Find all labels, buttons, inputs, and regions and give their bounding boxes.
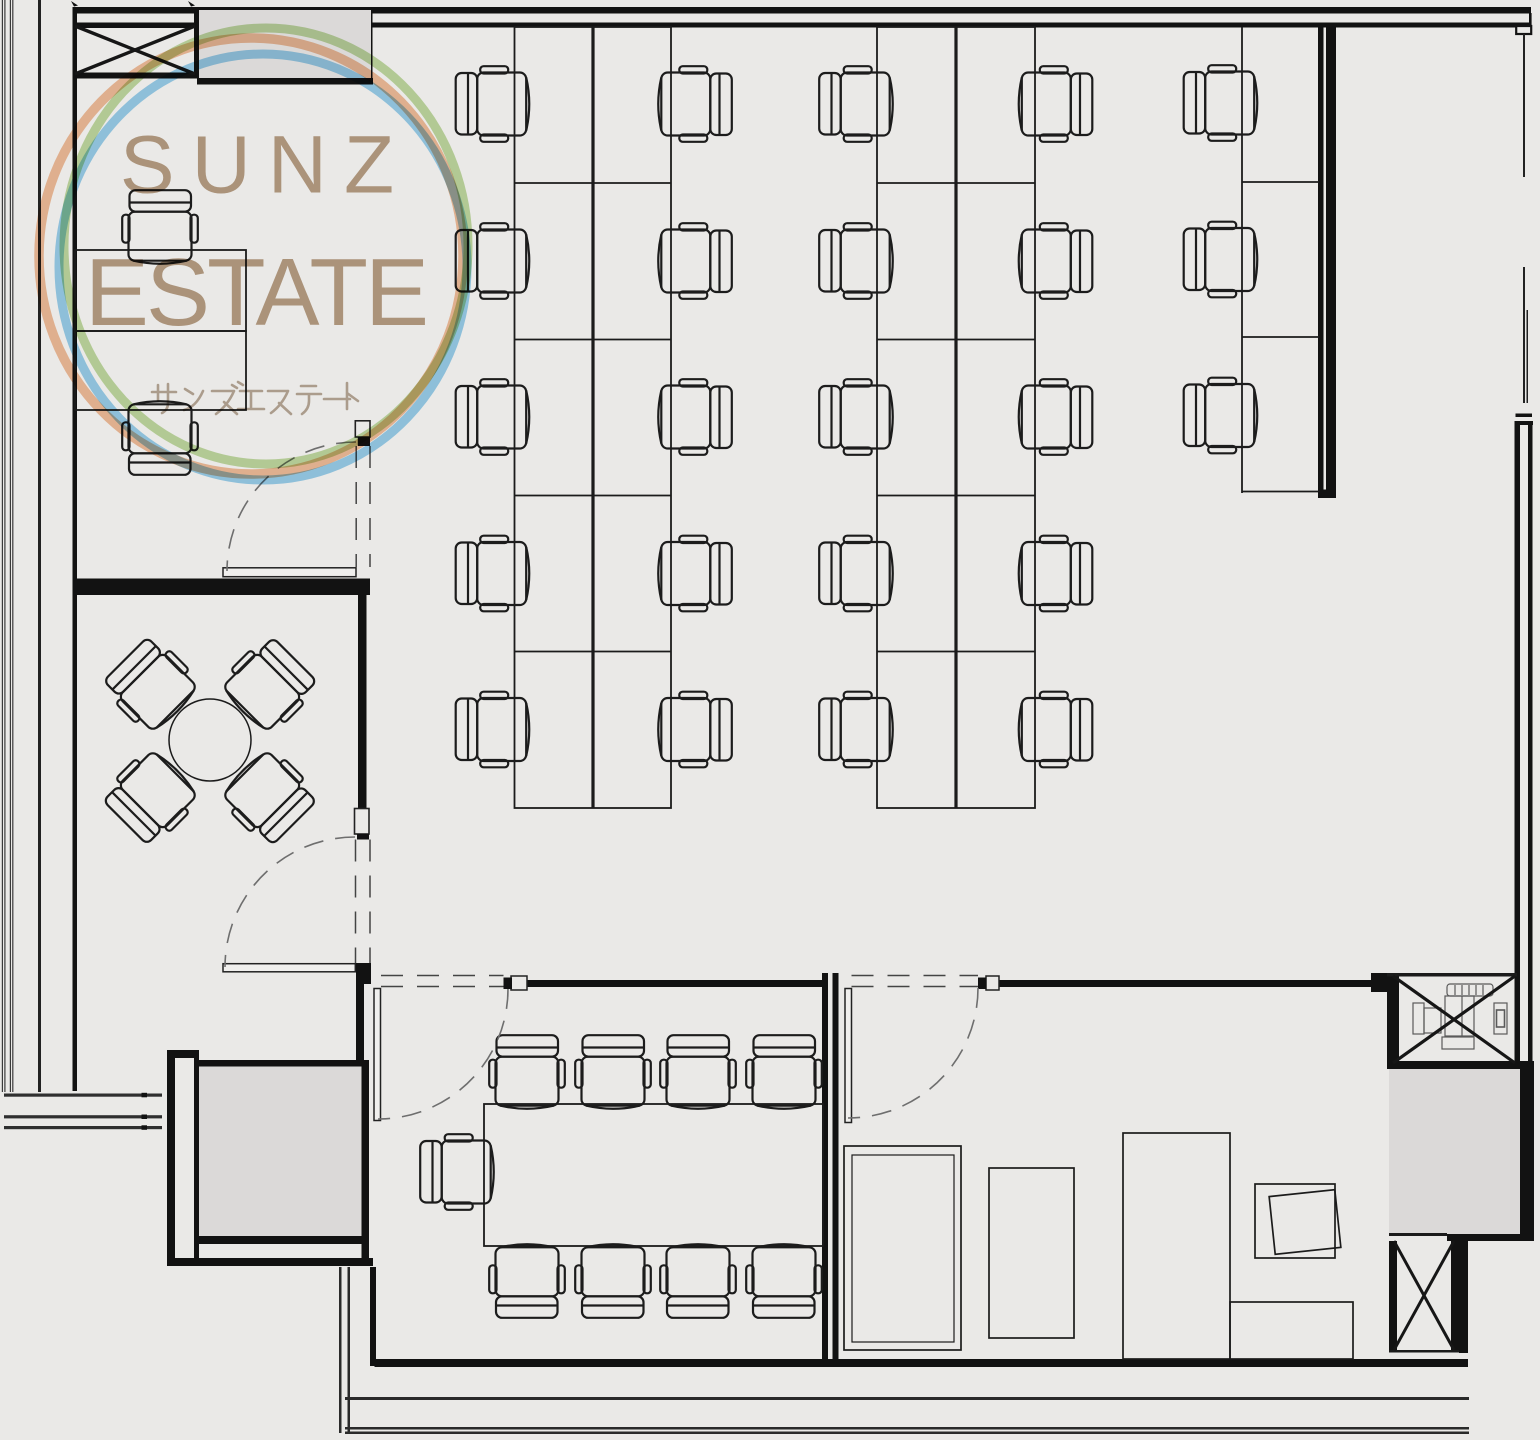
svg-text:ESTATE: ESTATE <box>85 239 426 346</box>
svg-text:SUNZ: SUNZ <box>120 120 411 211</box>
